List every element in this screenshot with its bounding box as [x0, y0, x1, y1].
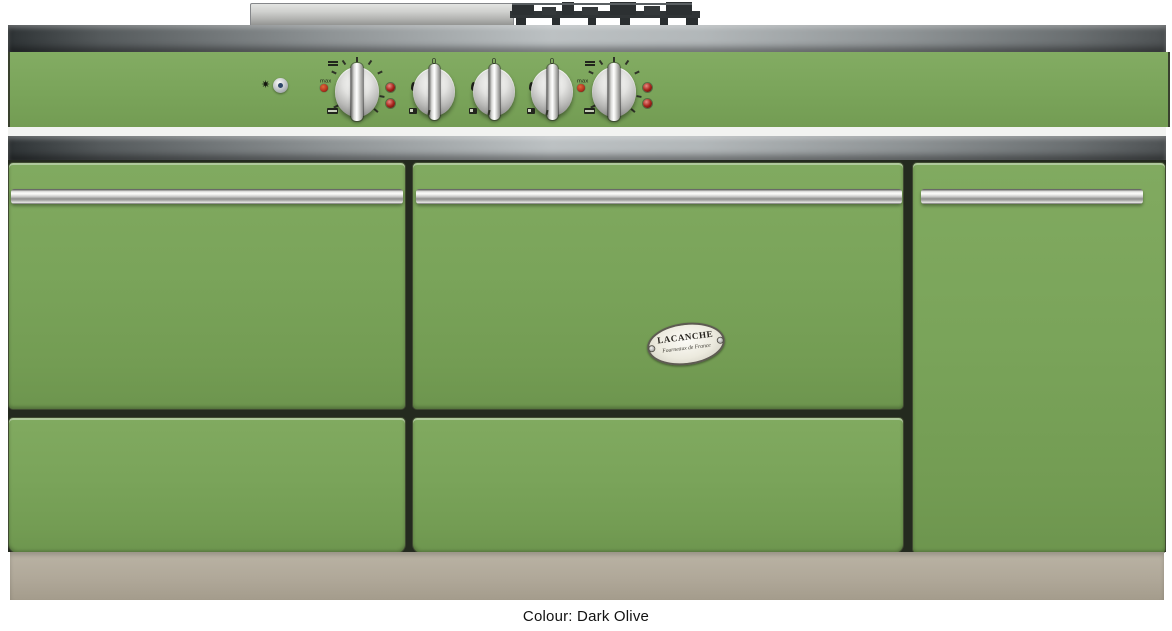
pilot-dot	[577, 84, 585, 92]
oven-bank: LACANCHE Fourneaux de France	[8, 160, 1166, 552]
central-oven-door: LACANCHE Fourneaux de France	[412, 162, 904, 410]
indicator-lamp	[643, 99, 652, 108]
grill-icon	[585, 61, 595, 68]
oven-solid-icon	[327, 108, 338, 114]
plinth	[10, 552, 1164, 600]
pan-support-grates-icon	[510, 0, 702, 28]
burner-position-icon	[409, 108, 417, 114]
spark-icon: ✷	[261, 80, 270, 91]
control-panel: ✷ max 0	[8, 52, 1170, 127]
oven-solid-icon	[584, 108, 595, 114]
max-label: max	[320, 78, 332, 84]
grill-icon	[328, 61, 338, 68]
burner-position-icon	[469, 108, 477, 114]
lacanche-badge: LACANCHE Fourneaux de France	[645, 318, 728, 369]
left-oven-thermostat-knob: max	[311, 52, 403, 127]
mid-steel-trim	[8, 136, 1166, 160]
left-storage-drawer	[8, 417, 406, 554]
top-steel-trim	[8, 25, 1166, 52]
door-handle	[921, 189, 1143, 204]
left-oven-door	[8, 162, 406, 410]
door-handle	[416, 189, 902, 204]
ignition-button	[273, 78, 288, 93]
indicator-lamp	[643, 83, 652, 92]
door-handle	[11, 189, 403, 204]
right-oven-thermostat-knob: max	[568, 52, 660, 127]
indicator-lamp	[386, 83, 395, 92]
product-image: ✷ max 0	[0, 0, 1172, 631]
worktop-edge-strip	[8, 127, 1166, 136]
indicator-lamp	[386, 99, 395, 108]
burner-position-icon	[527, 108, 535, 114]
pilot-dot	[320, 84, 328, 92]
central-storage-drawer	[412, 417, 904, 554]
stainless-lid	[250, 3, 514, 27]
right-tall-door	[912, 162, 1166, 554]
colour-caption: Colour: Dark Olive	[0, 608, 1172, 625]
max-label: max	[577, 78, 589, 84]
